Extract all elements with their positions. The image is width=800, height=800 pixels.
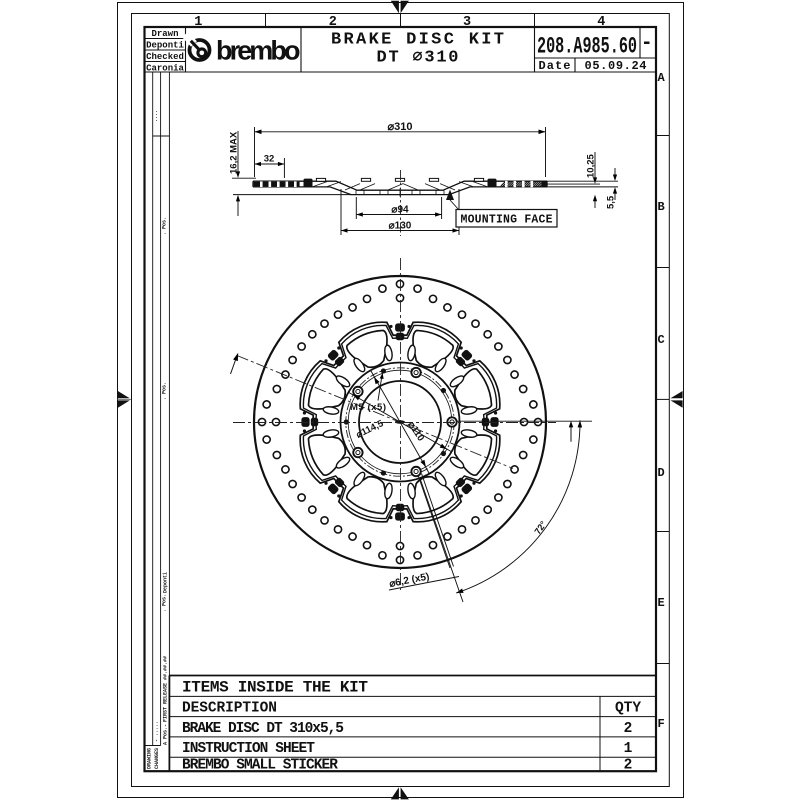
svg-text:2: 2 bbox=[329, 15, 337, 30]
svg-text:F: F bbox=[658, 717, 665, 731]
svg-text:-: - bbox=[163, 724, 169, 727]
svg-text:Deponti: Deponti bbox=[163, 572, 169, 593]
svg-text:5,5: 5,5 bbox=[606, 195, 617, 209]
svg-text:⌀130: ⌀130 bbox=[389, 220, 412, 231]
svg-text:05.09.24: 05.09.24 bbox=[585, 59, 647, 73]
svg-text:16,2 MAX: 16,2 MAX bbox=[229, 131, 240, 174]
svg-text:2: 2 bbox=[624, 758, 633, 774]
svg-text:10,25: 10,25 bbox=[586, 154, 597, 178]
svg-text:E: E bbox=[658, 596, 665, 610]
svg-text:. Pos.: . Pos. bbox=[162, 594, 168, 612]
svg-text:Caronia: Caronia bbox=[146, 64, 184, 74]
svg-text:INSTRUCTION SHEET: INSTRUCTION SHEET bbox=[182, 741, 315, 757]
svg-text:DESCRIPTION: DESCRIPTION bbox=[182, 701, 277, 717]
svg-text:. Pos.: . Pos. bbox=[162, 382, 168, 400]
svg-text:2: 2 bbox=[624, 721, 633, 737]
svg-text:BREMBO SMALL STICKER: BREMBO SMALL STICKER bbox=[182, 758, 338, 774]
svg-text:Date: Date bbox=[539, 59, 571, 73]
svg-text:- .....: - ..... bbox=[154, 721, 160, 742]
svg-text:DT ⌀310: DT ⌀310 bbox=[377, 49, 459, 68]
svg-text:Checked: Checked bbox=[146, 52, 184, 62]
svg-text:Deponti: Deponti bbox=[146, 41, 184, 51]
svg-text:FIRST RELEASE ##.##.##: FIRST RELEASE ##.##.## bbox=[163, 656, 169, 722]
svg-text:CHANGES: CHANGES bbox=[154, 748, 160, 769]
svg-text:ITEMS INSIDE THE KIT: ITEMS INSIDE THE KIT bbox=[182, 679, 368, 697]
svg-text:1: 1 bbox=[624, 741, 633, 757]
svg-text:C: C bbox=[658, 333, 665, 347]
svg-text:Drawn: Drawn bbox=[151, 29, 178, 39]
svg-text:⌀94: ⌀94 bbox=[391, 204, 409, 215]
svg-text:B: B bbox=[658, 200, 665, 214]
svg-text:DRAWING: DRAWING bbox=[147, 748, 153, 769]
svg-text:⌀310: ⌀310 bbox=[388, 121, 413, 133]
svg-text:A Pos.: A Pos. bbox=[163, 727, 169, 745]
svg-text:208.A985.60: 208.A985.60 bbox=[537, 34, 637, 60]
svg-text:3: 3 bbox=[463, 15, 471, 30]
svg-text:1: 1 bbox=[194, 15, 202, 30]
svg-text:brembo: brembo bbox=[216, 36, 300, 66]
svg-text:MOUNTING FACE: MOUNTING FACE bbox=[461, 214, 553, 227]
svg-text:32: 32 bbox=[264, 154, 275, 165]
svg-text:BRAKE DISC DT 310x5,5: BRAKE DISC DT 310x5,5 bbox=[182, 721, 344, 737]
svg-text:QTY: QTY bbox=[615, 701, 641, 717]
svg-text:D: D bbox=[658, 466, 665, 480]
svg-text:4: 4 bbox=[597, 15, 605, 30]
svg-text:....: .... bbox=[153, 110, 159, 122]
svg-text:A: A bbox=[658, 71, 666, 85]
svg-text:. Pos.: . Pos. bbox=[162, 217, 168, 235]
